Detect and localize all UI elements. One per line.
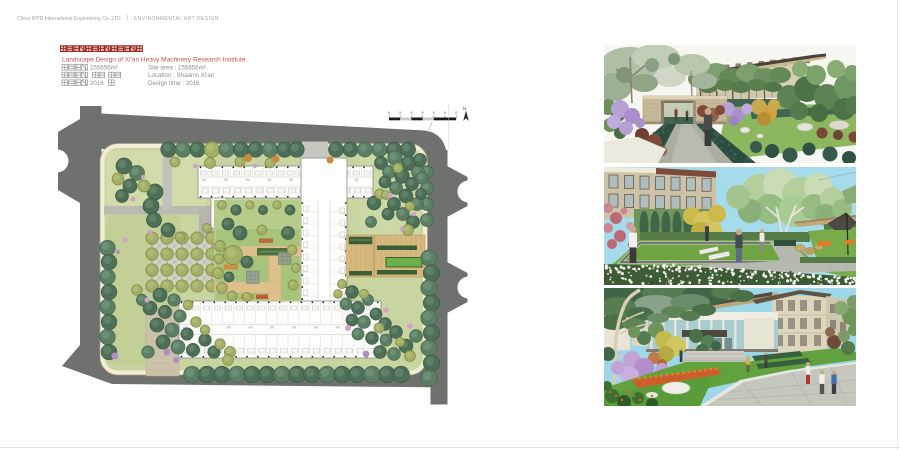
- svg-text:N: N: [463, 106, 466, 111]
